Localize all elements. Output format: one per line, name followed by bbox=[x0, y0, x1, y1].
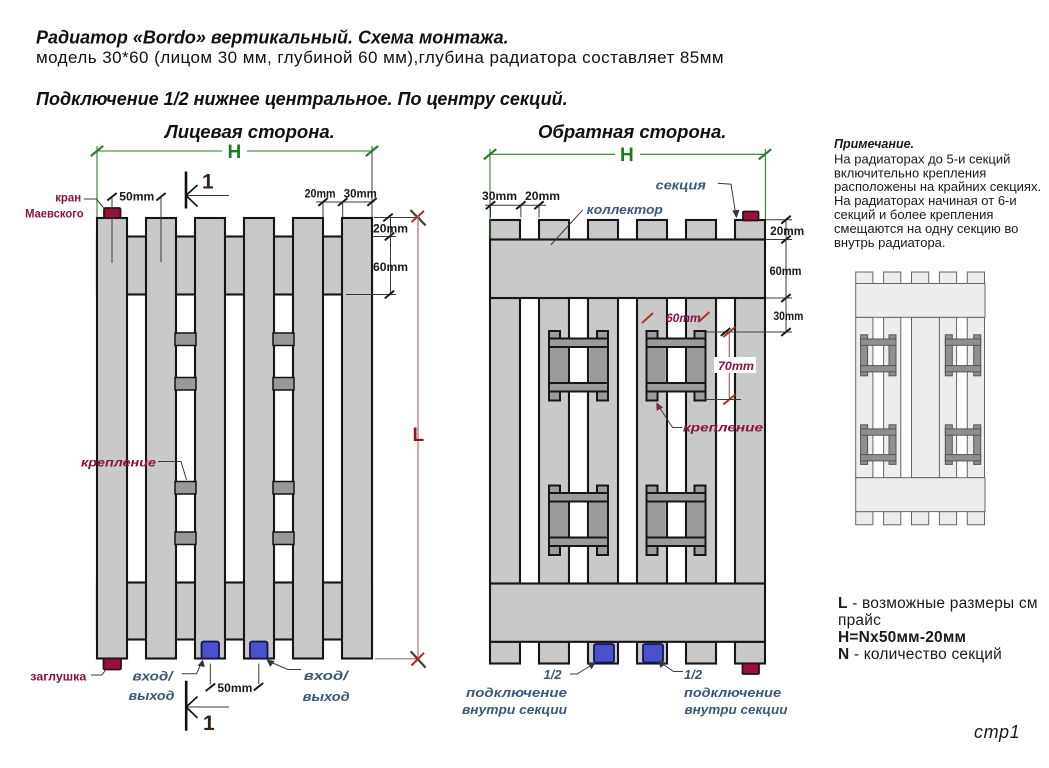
svg-text:выход: выход bbox=[129, 688, 175, 703]
svg-text:60mm: 60mm bbox=[373, 262, 408, 274]
svg-text:Подключение 1/2 нижнее централ: Подключение 1/2 нижнее центральное. По ц… bbox=[36, 89, 568, 109]
svg-text:H: H bbox=[228, 142, 242, 163]
svg-text:50mm: 50mm bbox=[119, 192, 154, 204]
svg-text:H: H bbox=[620, 145, 634, 166]
svg-text:подключение: подключение bbox=[684, 685, 781, 700]
svg-text:внутри секции: внутри секции bbox=[462, 702, 567, 717]
svg-text:внутрь радиатора.: внутрь радиатора. bbox=[834, 235, 946, 250]
svg-text:Лицевая сторона.: Лицевая сторона. bbox=[163, 121, 335, 142]
svg-text:секция: секция bbox=[656, 178, 707, 193]
svg-text:расположены на крайних секциях: расположены на крайних секциях. bbox=[834, 179, 1041, 194]
svg-text:Примечание.: Примечание. bbox=[834, 137, 914, 151]
svg-text:коллектор: коллектор bbox=[587, 202, 663, 217]
svg-text:вход/: вход/ bbox=[304, 668, 350, 683]
svg-text:20mm: 20mm bbox=[305, 189, 336, 201]
svg-text:30mm: 30mm bbox=[482, 191, 517, 203]
svg-text:крепление: крепление bbox=[683, 421, 763, 435]
svg-text:1/2: 1/2 bbox=[684, 667, 703, 682]
svg-text:внутри секции: внутри секции bbox=[685, 702, 788, 717]
svg-text:30mm: 30mm bbox=[344, 189, 377, 201]
svg-text:H=Nx50мм-20мм: H=Nx50мм-20мм bbox=[838, 629, 966, 646]
svg-text:прайс: прайс bbox=[838, 612, 881, 629]
svg-text:1/2: 1/2 bbox=[544, 667, 563, 682]
svg-text:вход/: вход/ bbox=[133, 669, 175, 684]
svg-text:выход: выход bbox=[303, 689, 350, 704]
svg-text:На радиаторах начиная от 6-и: На радиаторах начиная от 6-и bbox=[834, 193, 1017, 208]
svg-text:1: 1 bbox=[202, 171, 214, 194]
svg-text:L - возможные размеры см: L - возможные размеры см bbox=[838, 595, 1038, 612]
svg-text:20mm: 20mm bbox=[373, 224, 408, 236]
svg-text:смещаются на одну секцию во: смещаются на одну секцию во bbox=[834, 221, 1018, 236]
svg-text:50mm: 50mm bbox=[217, 683, 252, 695]
svg-text:60mm: 60mm bbox=[666, 311, 701, 325]
svg-text:стр1: стр1 bbox=[974, 722, 1020, 742]
svg-text:Обратная сторона.: Обратная сторона. bbox=[538, 121, 726, 142]
svg-text:Радиатор «Bordo» вертикальный.: Радиатор «Bordo» вертикальный. Схема мон… bbox=[36, 28, 509, 48]
svg-text:70mm: 70mm bbox=[718, 359, 754, 373]
svg-text:модель 30*60 (лицом 30 мм, глу: модель 30*60 (лицом 30 мм, глубиной 60 м… bbox=[36, 48, 724, 67]
svg-text:секций и более крепления: секций и более крепления bbox=[834, 207, 993, 222]
svg-text:60mm: 60mm bbox=[770, 266, 802, 278]
svg-text:заглушка: заглушка bbox=[30, 672, 87, 684]
svg-text:30mm: 30mm bbox=[773, 311, 803, 323]
svg-text:20mm: 20mm bbox=[770, 226, 804, 238]
svg-text:1: 1 bbox=[203, 712, 215, 735]
svg-text:Маевского: Маевского bbox=[25, 208, 84, 220]
svg-text:подключение: подключение bbox=[466, 685, 567, 700]
svg-text:На радиаторах до 5-и секций: На радиаторах до 5-и секций bbox=[834, 152, 1010, 167]
svg-text:кран: кран bbox=[55, 193, 81, 205]
svg-text:20mm: 20mm bbox=[525, 191, 560, 203]
svg-text:крепление: крепление bbox=[81, 456, 156, 470]
svg-text:N - количество секций: N - количество секций bbox=[838, 646, 1002, 663]
svg-text:L: L bbox=[413, 425, 425, 446]
